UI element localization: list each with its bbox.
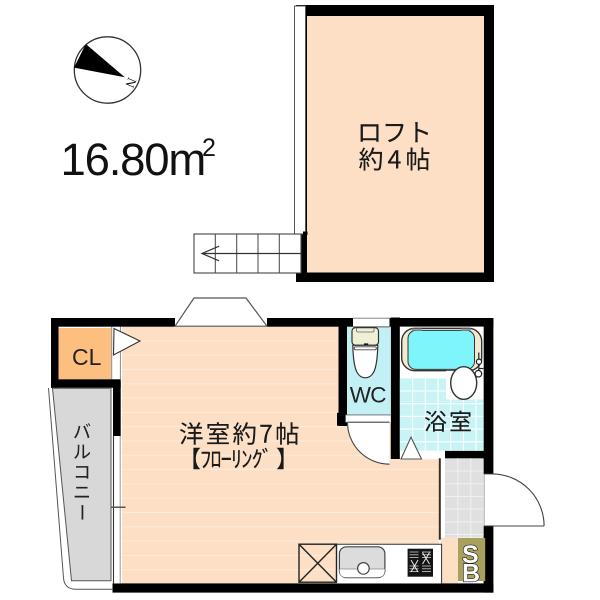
svg-text:CL: CL [72, 344, 102, 370]
svg-text:B: B [462, 560, 480, 588]
svg-text:2: 2 [202, 134, 216, 162]
svg-text:WC: WC [350, 383, 386, 408]
svg-text:16.80m: 16.80m [61, 134, 206, 185]
